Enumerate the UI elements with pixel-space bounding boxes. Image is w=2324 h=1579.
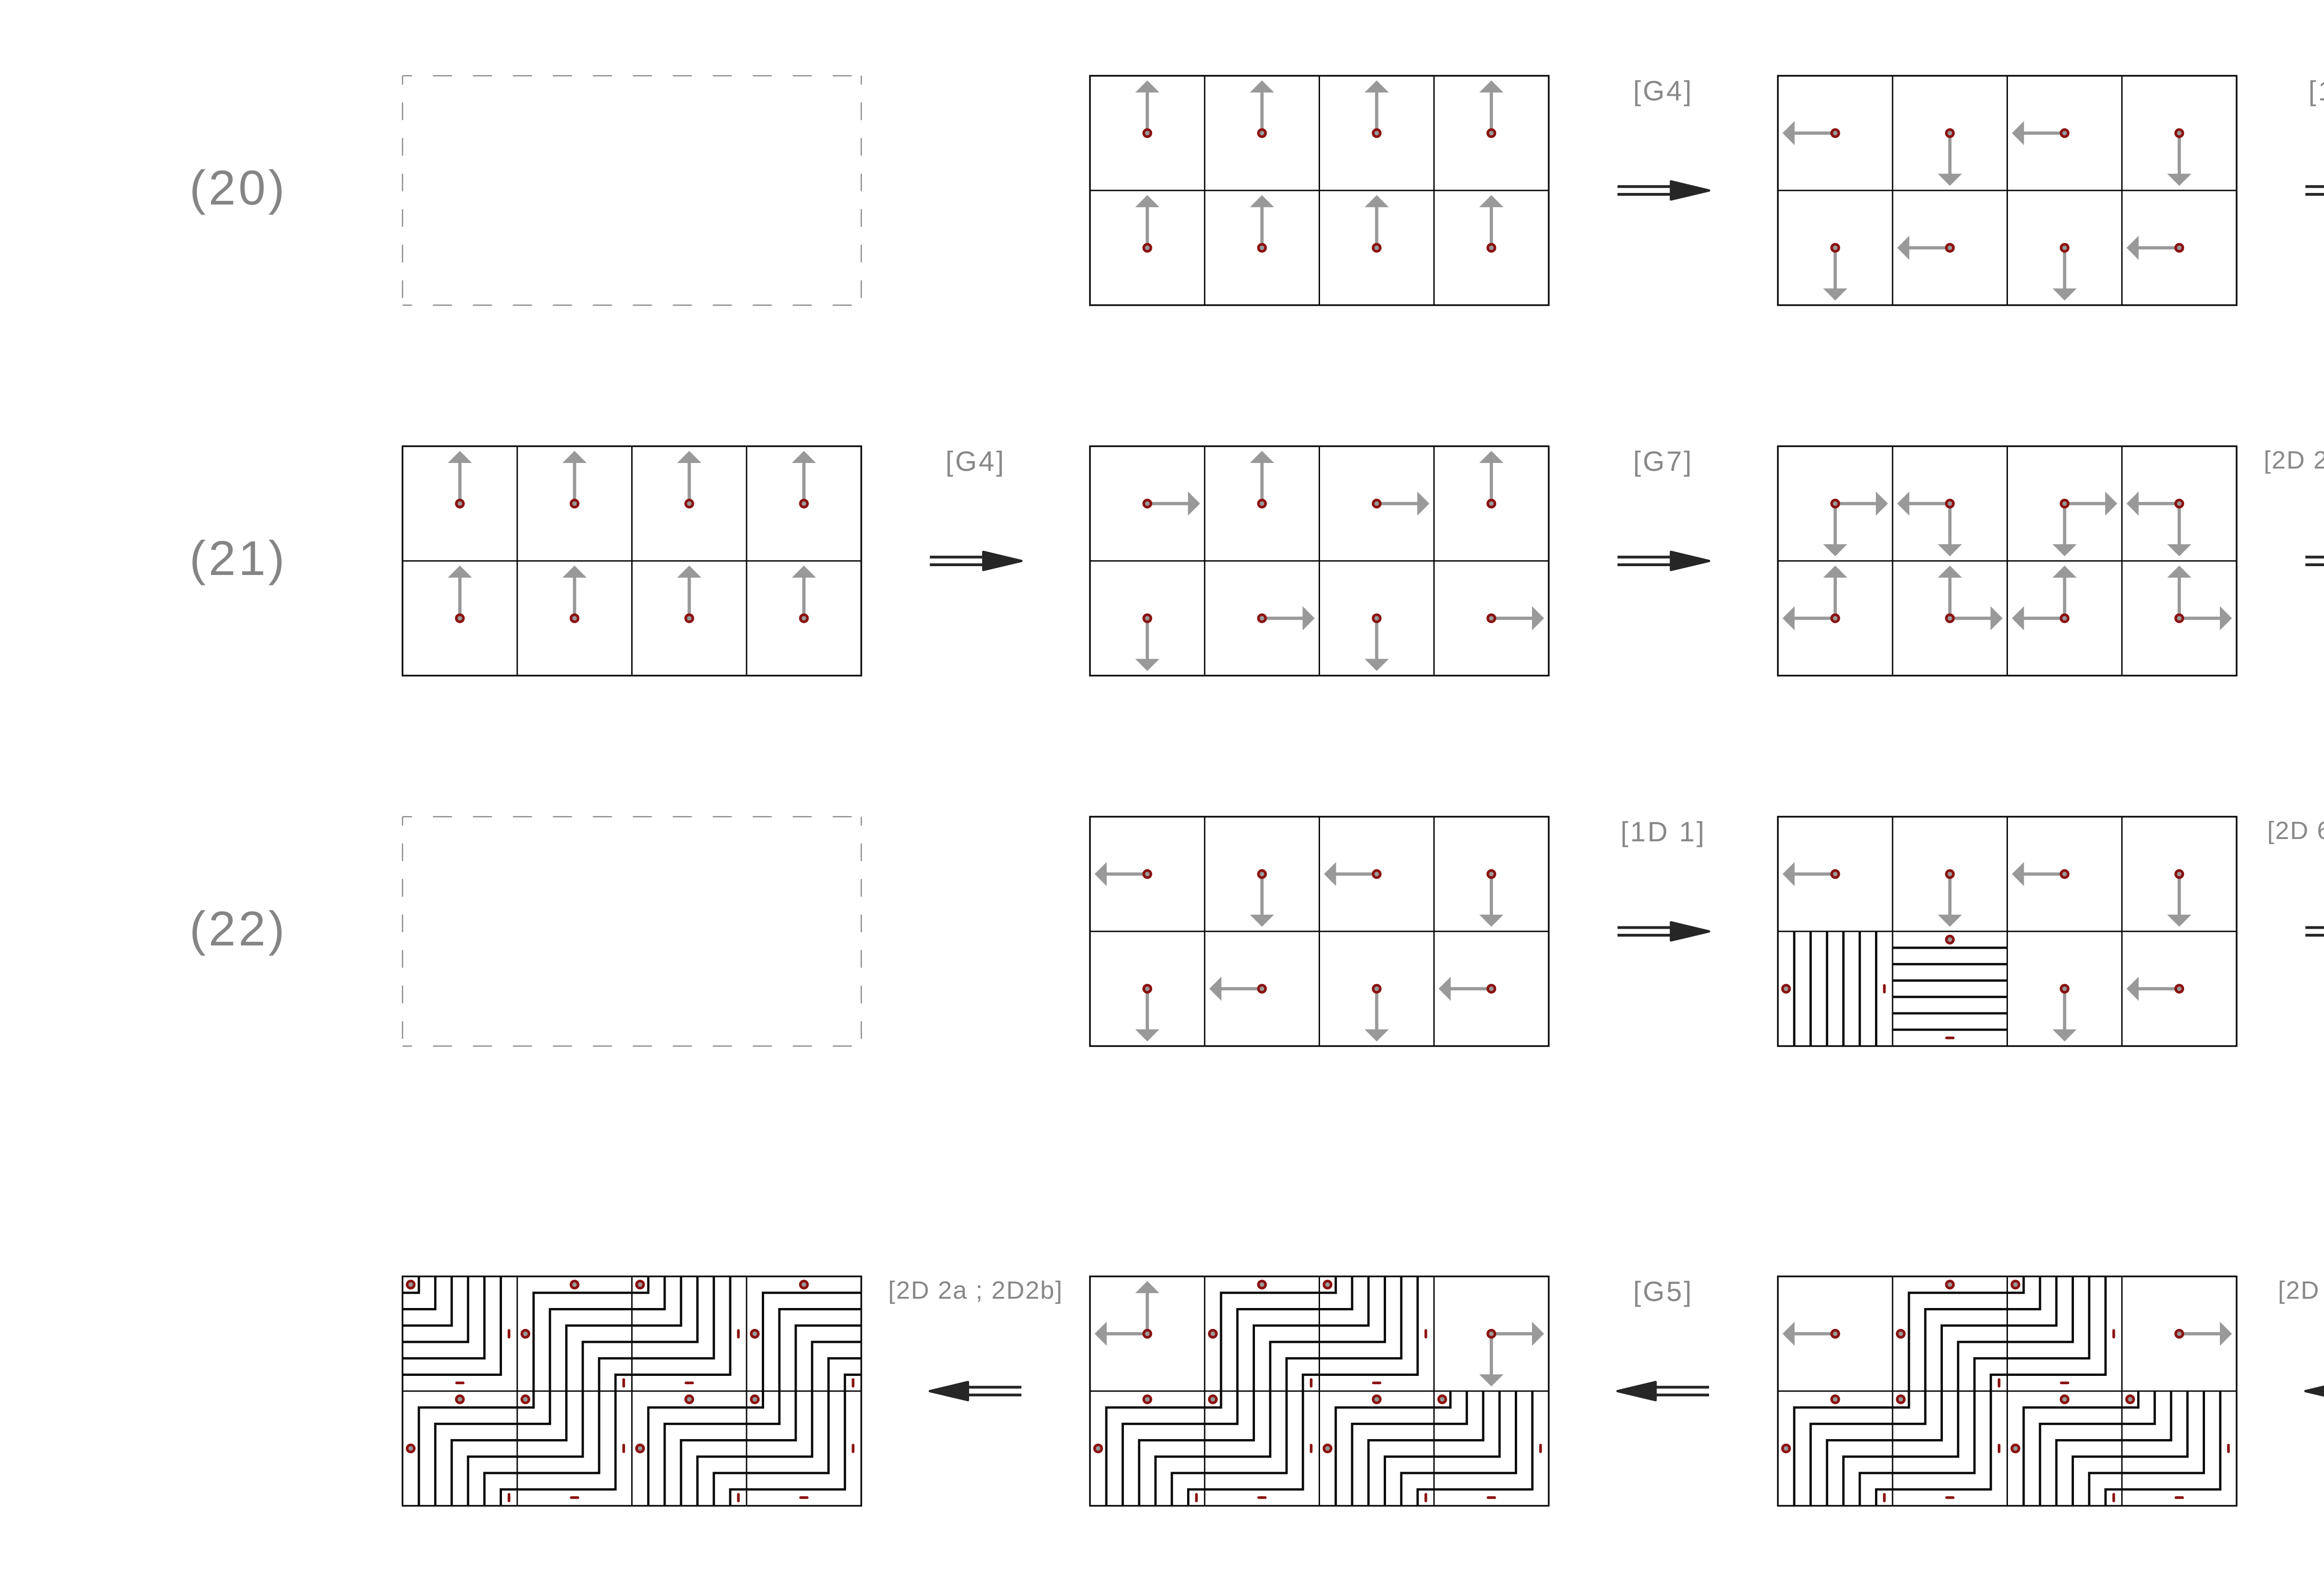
svg-text:[2D 2a ; 2D2b]: [2D 2a ; 2D2b] xyxy=(888,1276,1063,1304)
svg-text:[G7]: [G7] xyxy=(1633,446,1693,477)
svg-text:[G4]: [G4] xyxy=(945,446,1005,477)
svg-text:[G5]: [G5] xyxy=(1633,1276,1693,1307)
svg-text:[1D 1]: [1D 1] xyxy=(1620,816,1706,847)
svg-text:(21): (21) xyxy=(190,531,288,586)
svg-text:[2D 6b ; 1D 1]: [2D 6b ; 1D 1] xyxy=(2267,817,2324,845)
svg-text:(22): (22) xyxy=(190,902,288,956)
svg-text:[2D 6b ; G4]: [2D 6b ; G4] xyxy=(2278,1276,2324,1304)
svg-text:[G4]: [G4] xyxy=(1633,75,1693,106)
svg-text:(20): (20) xyxy=(190,161,288,215)
svg-text:[1D 1]: [1D 1] xyxy=(2308,75,2324,106)
svg-text:[2D 2a ; 2D2b]: [2D 2a ; 2D2b] xyxy=(2264,446,2324,474)
